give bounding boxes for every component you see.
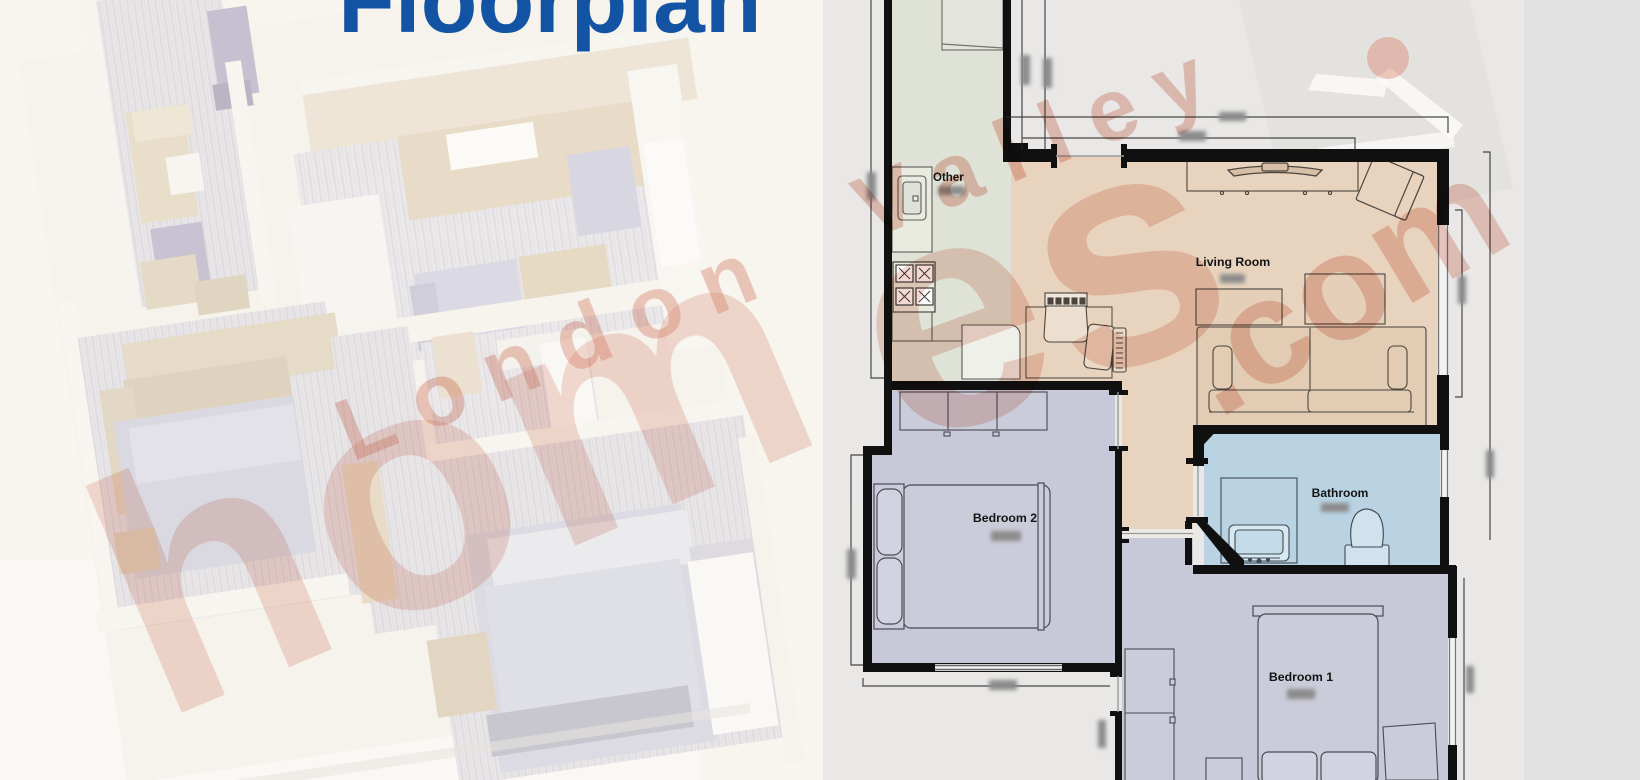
svg-text:Floorplan: Floorplan bbox=[338, 0, 762, 52]
svg-text:Bathroom: Bathroom bbox=[1312, 486, 1369, 500]
svg-text:Bedroom 2: Bedroom 2 bbox=[973, 511, 1037, 525]
svg-text:Bedroom 1: Bedroom 1 bbox=[1269, 670, 1333, 684]
